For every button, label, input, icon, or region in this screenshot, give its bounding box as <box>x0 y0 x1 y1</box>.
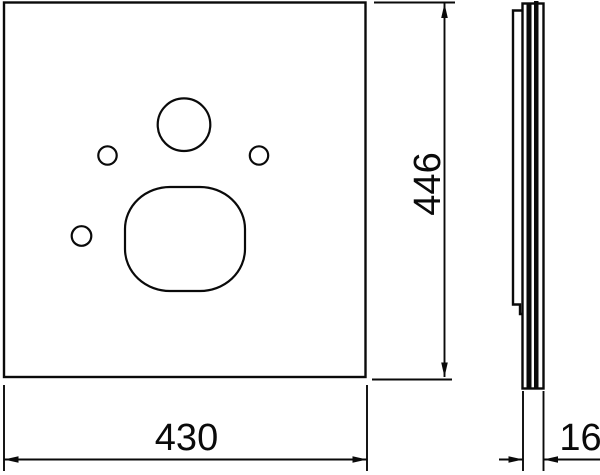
dimension-width: 430 <box>4 385 367 471</box>
technical-drawing-canvas: 430 446 16 <box>0 0 600 475</box>
front-view <box>4 3 366 378</box>
width-dimension-label: 430 <box>155 417 218 459</box>
arrowhead-bottom-icon <box>441 363 448 378</box>
height-dimension-label: 446 <box>407 152 449 215</box>
panel-front-outline <box>4 3 366 378</box>
glass-section-band-outer <box>534 1 539 389</box>
glass-section-band-inner <box>527 5 532 388</box>
arrowhead-right-icon <box>353 456 368 463</box>
arrowhead-thickness-left-icon <box>509 456 524 463</box>
dimension-height: 446 <box>372 3 455 380</box>
dimension-thickness: 16 <box>499 391 600 471</box>
arrowhead-top-icon <box>441 4 448 19</box>
arrowhead-thickness-right-icon <box>544 456 559 463</box>
thickness-dimension-label: 16 <box>559 417 600 459</box>
panel-dimension-drawing: 430 446 16 <box>0 0 600 475</box>
panel-side-outline <box>523 4 544 389</box>
side-view <box>513 1 544 389</box>
arrowhead-left-icon <box>4 456 19 463</box>
